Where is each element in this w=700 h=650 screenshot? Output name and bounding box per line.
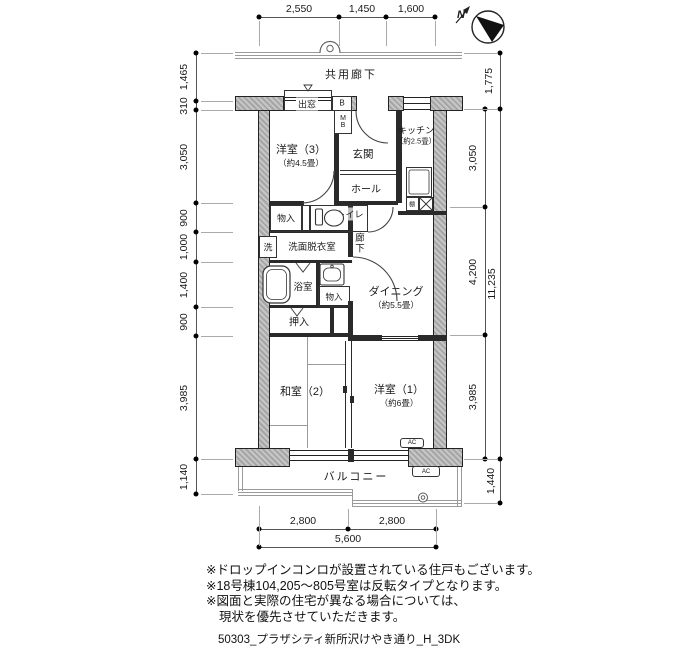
dim-left-8: 3,985	[178, 385, 190, 411]
ext-line	[201, 110, 233, 111]
railing-line	[235, 55, 462, 56]
ext-line	[348, 509, 349, 527]
partition-handle	[343, 386, 347, 393]
ext-line	[201, 307, 233, 308]
room-bathroom: 浴室	[293, 279, 312, 293]
railing-line	[235, 58, 462, 59]
dim-dot	[194, 230, 199, 235]
room-washroom: 洗面脱衣室	[288, 239, 336, 253]
dim-dot	[498, 51, 503, 56]
room-dining: ダイニング	[369, 283, 424, 299]
room-bay-window: 出窓	[296, 98, 318, 111]
dim-bottom-1: 2,800	[290, 515, 316, 527]
balcony-rail	[352, 503, 462, 504]
toilet-door-arc	[368, 207, 393, 232]
washbasin	[320, 264, 344, 285]
dim-dot	[483, 205, 488, 210]
dim-line-bottom-2	[259, 547, 436, 548]
room-western3: 洋室（3）	[276, 141, 326, 157]
dim-dot	[384, 15, 389, 20]
dim-dot	[194, 334, 199, 339]
shelf-strip	[302, 205, 310, 232]
entrance-step-line	[340, 174, 396, 175]
dim-dot	[498, 501, 503, 506]
ac-unit-label: AC	[408, 440, 416, 446]
dim-left-2: 310	[178, 97, 190, 115]
balcony-rail	[238, 489, 352, 490]
ext-line	[435, 21, 436, 46]
dim-line-top	[259, 17, 435, 18]
room-dining-size: （約5.5畳）	[373, 299, 419, 311]
kitchen-shelf-label: 棚	[409, 200, 415, 209]
floorplan-canvas: 2,550 1,450 1,600 1,465 310 3,050 900 1,…	[0, 0, 700, 650]
dim-top-1: 2,550	[286, 3, 312, 15]
dim-bottom-3: 5,600	[335, 533, 361, 545]
balcony-rail	[457, 467, 458, 506]
inner-wall	[398, 211, 447, 215]
room-western3-size: （約4.5畳）	[278, 157, 324, 169]
ac-balcony-box: AC	[412, 466, 440, 477]
dim-dot	[434, 545, 439, 550]
kitchen-sink-box	[406, 167, 432, 197]
inner-wall	[418, 335, 447, 341]
dim-left-5: 1,000	[178, 234, 190, 260]
ext-line	[201, 203, 233, 204]
ext-line	[339, 21, 340, 46]
balcony-rail	[242, 467, 243, 491]
room-hall: ホール	[351, 181, 381, 196]
dim-left-1: 1,465	[178, 64, 190, 90]
room-toilet: トイレ	[336, 208, 363, 221]
compass-n-label: N	[457, 9, 465, 21]
inner-wall	[270, 260, 352, 263]
balcony-rail	[352, 500, 462, 501]
ext-line	[436, 509, 437, 545]
note-line-1: ※ドロップインコンロが設置されている住戸もございます。	[206, 563, 540, 579]
room-storage-mid: 物入	[325, 291, 342, 303]
notes-block: ※ドロップインコンロが設置されている住戸もございます。 ※18号棟104,205…	[206, 563, 540, 625]
wall-pier	[235, 96, 284, 111]
room-closet: 押入	[289, 314, 309, 329]
dim-left-7: 900	[178, 313, 190, 331]
tatami-line	[307, 364, 345, 365]
balcony-rail	[461, 467, 462, 506]
inner-wall	[348, 335, 382, 341]
wall-pier	[235, 448, 290, 467]
dim-dot	[433, 15, 438, 20]
dim-dot	[337, 15, 342, 20]
ext-line	[259, 506, 260, 546]
kitchen-window	[404, 97, 430, 110]
ext-line	[201, 53, 233, 54]
bifold-door-mark	[296, 263, 310, 272]
ac-balcony-label: AC	[422, 469, 430, 475]
room-balcony: バルコニー	[324, 468, 389, 484]
inner-wall	[330, 307, 334, 335]
ext-line	[201, 232, 233, 233]
balcony-rail	[238, 495, 352, 496]
wall-segment	[388, 96, 404, 111]
dim-dot	[194, 201, 199, 206]
kitchen-stove-box	[419, 197, 433, 211]
ext-line	[201, 459, 233, 460]
ext-line	[464, 503, 498, 504]
sliding-partition	[345, 341, 352, 448]
balcony-door-western1	[354, 450, 408, 461]
plan-id-footer: 50303_プラザシティ新所沢けやき通り_H_3DK	[218, 631, 460, 647]
wall-left	[258, 110, 270, 450]
dim-right-outer-2: 11,235	[486, 268, 498, 299]
note-line-2: ※18号棟104,205～805号室は反転タイプとなります。	[206, 579, 540, 595]
ac-unit-box: AC	[400, 438, 424, 448]
dim-right-inner-1: 3,050	[467, 145, 479, 171]
railing-bump-circle	[327, 45, 333, 51]
partition-handle	[350, 396, 354, 403]
washbasin-bowl	[324, 268, 341, 281]
washbasin-faucet	[331, 265, 334, 268]
dim-dot	[194, 108, 199, 113]
dim-left-6: 1,400	[178, 272, 190, 298]
room-kitchen-size: （約2.5畳）	[396, 136, 436, 147]
ext-line	[386, 21, 387, 46]
dim-dot	[194, 457, 199, 462]
ext-line	[464, 53, 498, 54]
ext-line	[450, 335, 483, 336]
meter-box-label: MB	[340, 115, 347, 129]
dim-dot	[194, 260, 199, 265]
inner-wall	[270, 333, 352, 337]
room-common-corridor: 共用廊下	[325, 66, 377, 82]
dim-dot	[257, 15, 262, 20]
room-entrance: 玄関	[353, 147, 374, 162]
entrance-step-line	[340, 170, 396, 171]
note-line-3: ※図面と実際の住宅が異なる場合については、	[206, 594, 540, 610]
room-corridor: 廊下	[351, 233, 365, 254]
tatami-line	[270, 425, 308, 426]
dim-dot	[194, 492, 199, 497]
dim-left-9: 1,140	[178, 464, 190, 490]
wall-right	[433, 110, 447, 450]
room-japanese2: 和室（2）	[280, 383, 330, 399]
wall-pier	[430, 96, 463, 111]
dim-dot	[483, 333, 488, 338]
dim-dot	[194, 99, 199, 104]
room-storage-top: 物入	[277, 212, 295, 225]
dim-right-outer-3: 1,440	[485, 468, 497, 494]
compass-needle	[476, 16, 504, 42]
balcony-door-japanese2	[290, 450, 348, 461]
ext-line	[259, 21, 260, 46]
inner-wall	[334, 134, 339, 203]
dim-dot	[498, 457, 503, 462]
dim-dot	[346, 527, 351, 532]
room-western1: 洋室（1）	[374, 381, 424, 397]
dim-bottom-2: 2,800	[379, 515, 405, 527]
b-box-label: B	[339, 99, 344, 108]
note-line-4: 現状を優先させていただきます。	[206, 610, 540, 626]
ext-line	[464, 459, 498, 460]
balcony-drain-inner	[421, 496, 425, 500]
ext-line	[201, 101, 233, 102]
dim-dot	[194, 51, 199, 56]
entrance-door-arc	[356, 111, 388, 143]
dim-dot	[194, 305, 199, 310]
balcony-rail	[238, 467, 239, 491]
compass-circle	[472, 11, 504, 43]
dim-top-2: 1,450	[349, 3, 375, 15]
dim-line-left	[196, 53, 197, 494]
room-western1-size: （約6畳）	[380, 397, 419, 409]
dim-right-inner-3: 3,985	[467, 384, 479, 410]
washer-label: 洗	[263, 241, 272, 254]
dim-right-outer-1: 1,775	[483, 68, 495, 94]
dim-line-right-outer	[500, 53, 501, 503]
ext-line	[201, 336, 233, 337]
ext-line	[201, 262, 233, 263]
wall-pier	[408, 448, 463, 467]
sliding-door-western1	[382, 336, 418, 341]
railing-line	[235, 52, 462, 53]
dim-dot	[498, 107, 503, 112]
dim-left-3: 3,050	[178, 144, 190, 170]
dim-right-inner-2: 4,200	[467, 259, 479, 285]
dim-left-4: 900	[178, 209, 190, 227]
balcony-rail	[352, 506, 462, 507]
ext-line	[464, 109, 498, 110]
balcony-rail	[238, 492, 352, 493]
dim-top-3: 1,600	[398, 3, 424, 15]
western3-door-arc	[302, 171, 334, 203]
ext-line	[201, 494, 233, 495]
ext-line	[450, 207, 483, 208]
